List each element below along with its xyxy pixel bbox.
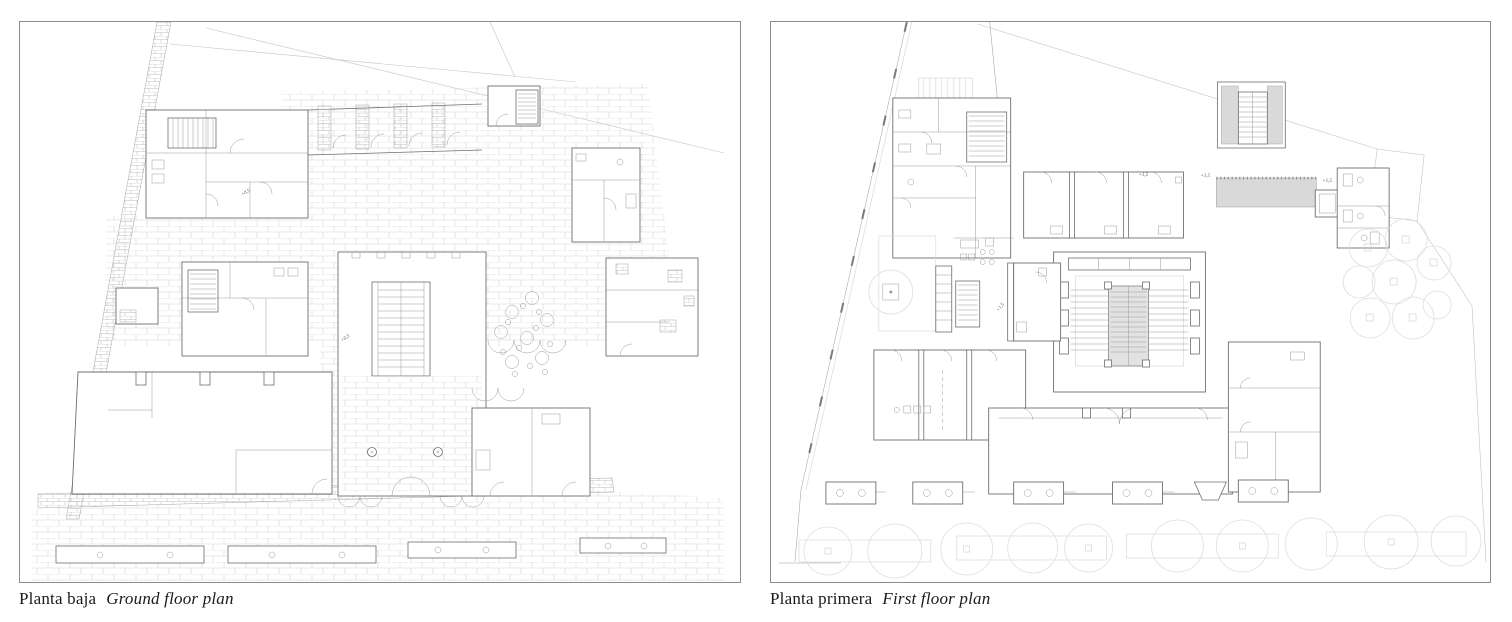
north-band-rooms [1024, 172, 1184, 238]
caption-english: First floor plan [882, 589, 990, 608]
balcony [1238, 480, 1288, 502]
level-label: +1,5 [996, 302, 1006, 313]
north-east-stair-block [1217, 82, 1285, 148]
courtyard-paving [342, 376, 482, 492]
balcony [1113, 482, 1163, 504]
caption-first-floor: Planta primeraFirst floor plan [770, 589, 990, 609]
drawing-sheet: +0,5 +0,5 [0, 0, 1512, 622]
skylight-strip [1216, 178, 1316, 207]
balconies [826, 480, 1288, 504]
south-rooms [472, 408, 590, 496]
first-floor-panel: +1,5 +1,5 +1,5 +1,5 [770, 21, 1491, 583]
street-planters [799, 532, 1466, 562]
east-rooms [1228, 342, 1320, 492]
ground-floor-plan-drawing: +0,5 +0,5 [20, 22, 740, 582]
level-label: +1,5 [1322, 179, 1332, 184]
caption-spanish: Planta baja [19, 589, 96, 608]
bench [580, 538, 666, 553]
top-right-room [488, 86, 540, 126]
top-left-rooms [146, 110, 308, 218]
balcony [913, 482, 963, 504]
south-west-block [72, 372, 332, 494]
porch [1194, 482, 1226, 500]
south-wing [989, 408, 1233, 494]
balcony [826, 482, 876, 504]
east-rooms-upper [572, 148, 640, 242]
first-floor-plan-drawing: +1,5 +1,5 +1,5 +1,5 [771, 22, 1490, 582]
fountain [434, 448, 443, 457]
ground-floor-panel: +0,5 +0,5 [19, 21, 741, 583]
bench [408, 542, 516, 558]
caption-spanish: Planta primera [770, 589, 872, 608]
caption-ground-floor: Planta bajaGround floor plan [19, 589, 234, 609]
level-label: +1,5 [1200, 174, 1210, 179]
central-stair-hall [338, 252, 486, 507]
level-label: +1,5 [1138, 173, 1148, 178]
balcony [1014, 482, 1064, 504]
bench [228, 546, 376, 563]
fountain [368, 448, 377, 457]
caption-english: Ground floor plan [106, 589, 233, 608]
east-rooms-lower [606, 258, 698, 356]
bench [56, 546, 204, 563]
trees-street [804, 515, 1481, 578]
top-left-rooms [893, 78, 1011, 258]
central-stair-hall [1054, 252, 1206, 392]
